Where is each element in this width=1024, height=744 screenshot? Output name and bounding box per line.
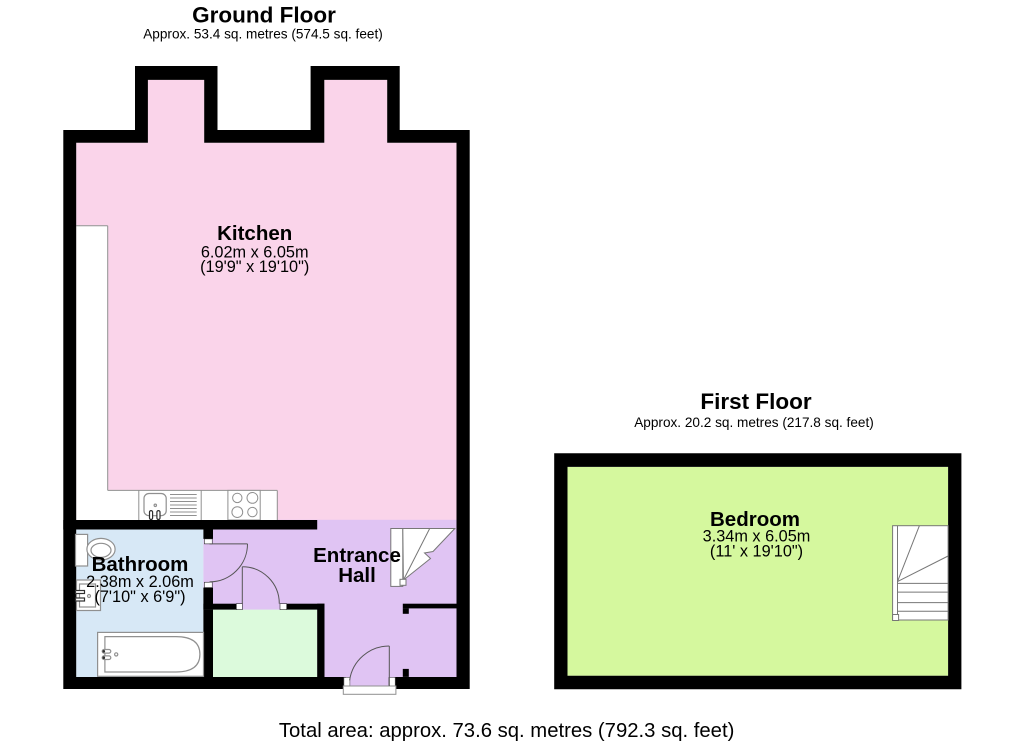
svg-text:Hall: Hall (338, 564, 376, 587)
svg-text:(11' x 19'10"): (11' x 19'10") (710, 543, 803, 561)
svg-text:(7'10" x 6'9"): (7'10" x 6'9") (94, 588, 185, 606)
svg-text:Total area: approx. 73.6 sq. m: Total area: approx. 73.6 sq. metres (792… (279, 720, 734, 742)
svg-text:(19'9" x 19'10"): (19'9" x 19'10") (200, 258, 309, 276)
svg-text:Kitchen: Kitchen (217, 222, 292, 245)
svg-text:Approx. 20.2 sq. metres (217.8: Approx. 20.2 sq. metres (217.8 sq. feet) (634, 415, 874, 430)
svg-text:Ground Floor: Ground Floor (192, 3, 336, 28)
svg-text:First Floor: First Floor (700, 389, 811, 414)
svg-text:Approx. 53.4 sq. metres (574.5: Approx. 53.4 sq. metres (574.5 sq. feet) (143, 27, 383, 42)
